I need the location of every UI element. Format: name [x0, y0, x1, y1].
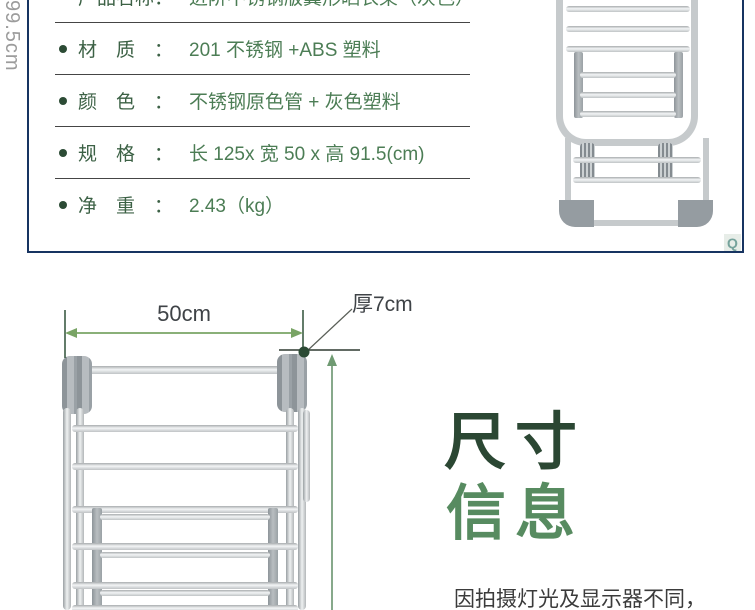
product-detail-page: 产品名称： 进阶不锈钢版翼形晒衣架（灰色） 材质： 201 不锈钢 +ABS 塑…: [0, 0, 755, 610]
width-dimension-label: 50cm: [124, 301, 244, 327]
dimension-lines: [0, 280, 430, 610]
headline-size: 尺寸: [444, 412, 586, 474]
height-dimension-label: 99.5cm: [0, 0, 23, 72]
dimension-diagram: 50cm 厚7cm 99.5cm 尺寸 信息 因拍摄灯光及显示器不同，: [0, 0, 755, 610]
headline-info: 信息: [446, 484, 584, 544]
thickness-dimension-label: 厚7cm: [352, 288, 413, 318]
display-note-caption: 因拍摄灯光及显示器不同，: [454, 583, 706, 610]
corner-dot: [299, 347, 310, 358]
